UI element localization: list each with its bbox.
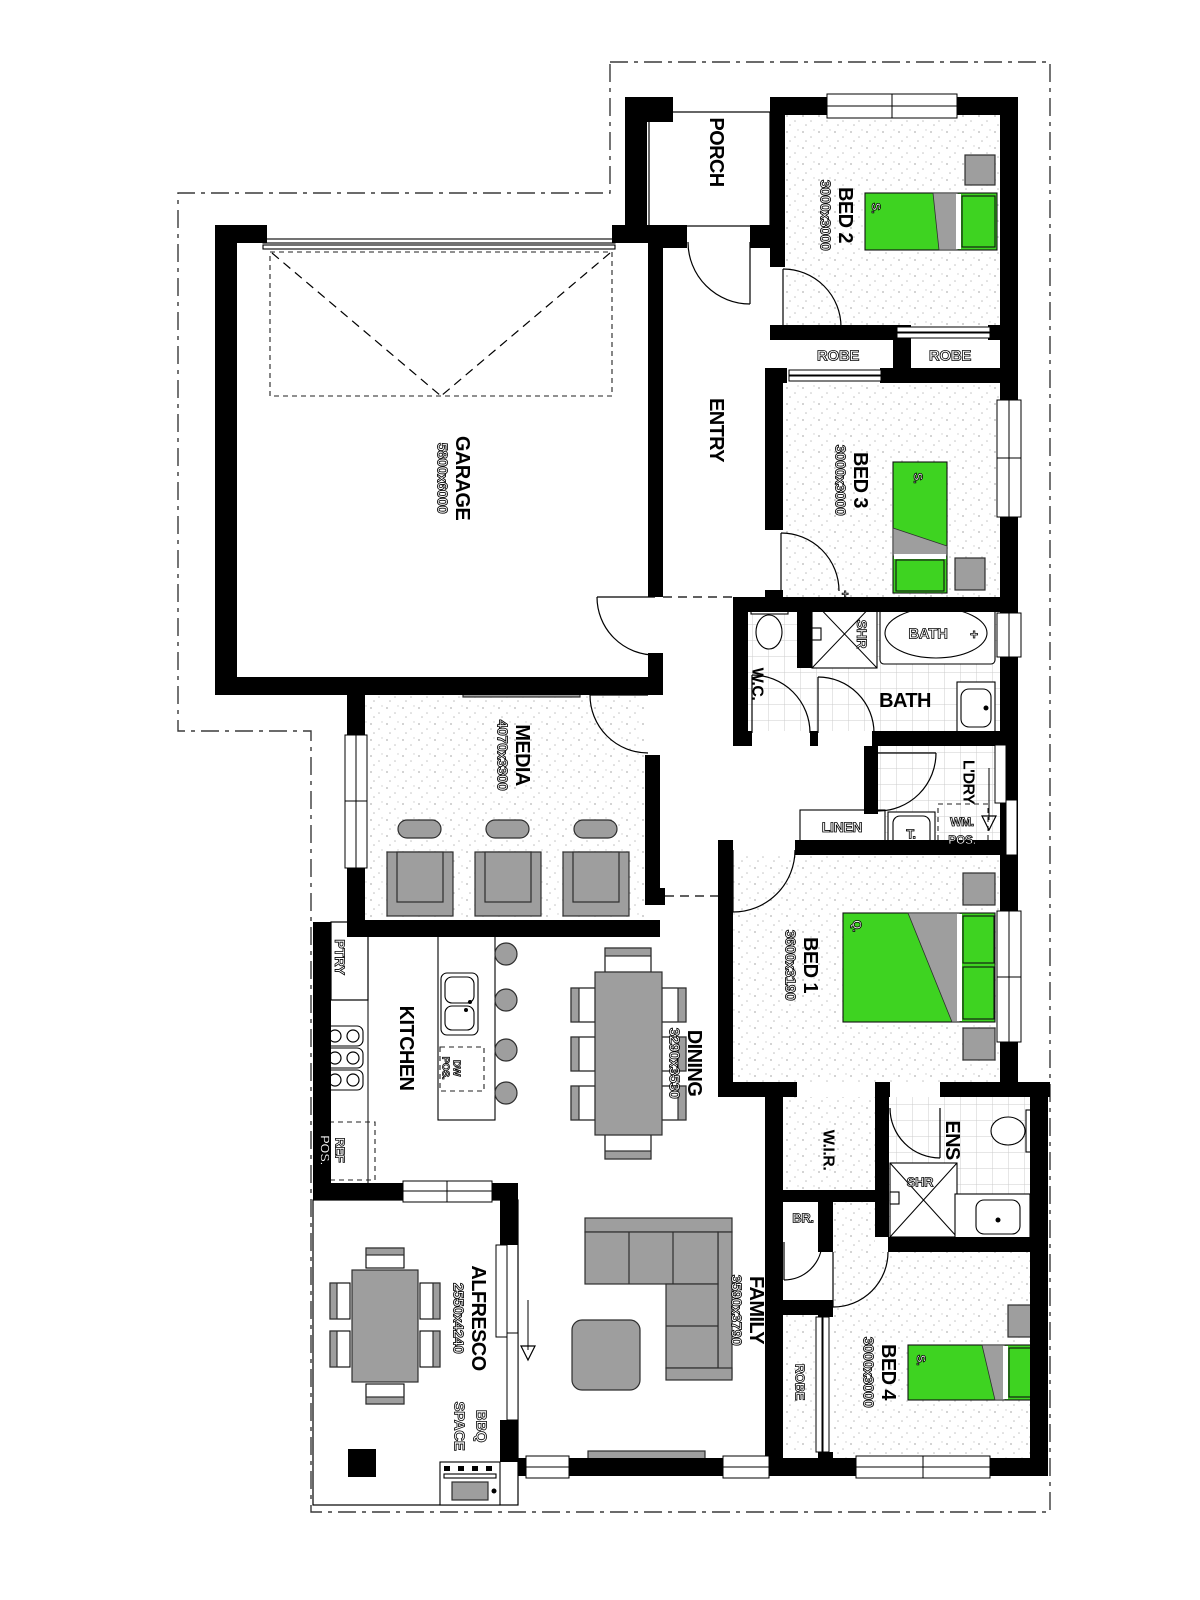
- bed2-bed-size-label: S.: [869, 203, 883, 214]
- svg-text:REF: REF: [333, 1137, 348, 1162]
- svg-text:3000x3000: 3000x3000: [832, 445, 849, 516]
- bath-window: [997, 613, 1021, 657]
- svg-text:FAMILY: FAMILY: [745, 1276, 767, 1345]
- svg-text:Q.: Q.: [850, 920, 864, 932]
- bed4-label: BED 4 3000x3000: [860, 1337, 900, 1408]
- bar-stools: [495, 943, 517, 1104]
- entry-label: ENTRY: [705, 398, 727, 463]
- wir-label: W.I.R.: [820, 1130, 837, 1171]
- garage-label: GARAGE 5800x6000: [434, 436, 474, 520]
- svg-text:2550x4240: 2550x4240: [450, 1283, 467, 1354]
- pantry-label: PTRY: [332, 939, 348, 976]
- svg-text:S.: S.: [914, 1355, 928, 1366]
- wm-label-1: WM.: [950, 815, 974, 829]
- family-window-2: [723, 1456, 769, 1478]
- trough-label: T.: [906, 827, 916, 842]
- kitchen-fittings: [320, 922, 517, 1183]
- bath-tub-label: BATH: [908, 626, 947, 643]
- svg-text:SHR: SHR: [854, 620, 870, 649]
- garage-internal-door: [597, 597, 655, 655]
- svg-text:3000x3000: 3000x3000: [860, 1337, 877, 1408]
- robe-bed3-label: ROBE: [929, 348, 971, 365]
- ens-vanity: [955, 1194, 1030, 1238]
- svg-text:DW: DW: [451, 1060, 462, 1077]
- bed2-label: BED 2 3000x3000: [817, 180, 857, 251]
- ottoman: [572, 1320, 640, 1390]
- kitchen-window: [403, 1181, 492, 1202]
- bath-shower-label: SHR: [854, 620, 870, 649]
- alfresco-table: [330, 1248, 440, 1404]
- bed3-bed-size-label: S.: [911, 473, 925, 484]
- bed4-nook-floor: [833, 1202, 875, 1252]
- kitchen-sink: [441, 973, 478, 1035]
- bed4-window: [856, 1456, 990, 1478]
- svg-text:S.: S.: [869, 203, 883, 214]
- robe2-slider: [897, 327, 990, 338]
- porch-label: PORCH: [705, 117, 727, 186]
- media-recliners: [387, 820, 629, 916]
- kitchen-label: KITCHEN: [395, 1006, 417, 1091]
- robe3-slider: [789, 370, 881, 381]
- robe-bed2-label: ROBE: [817, 348, 859, 365]
- svg-text:BED 1: BED 1: [799, 937, 821, 993]
- robe4-slider: [816, 1317, 829, 1452]
- alfresco-door-arrow: [521, 1300, 535, 1360]
- svg-text:W.I.R.: W.I.R.: [820, 1130, 837, 1171]
- svg-text:ENS: ENS: [941, 1120, 963, 1160]
- svg-text:S.: S.: [911, 473, 925, 484]
- robe-bed4-label: ROBE: [793, 1364, 808, 1401]
- floor-plan-page: +: [0, 0, 1200, 1600]
- svg-text:MEDIA: MEDIA: [511, 724, 533, 786]
- linen-label: LINEN: [822, 819, 863, 835]
- svg-text:PTRY: PTRY: [332, 939, 348, 976]
- bed1-window: [997, 911, 1021, 1042]
- bbq-space-label: BBQ SPACE: [451, 1401, 490, 1450]
- bbq: [440, 1462, 500, 1505]
- svg-text:3590x3790: 3590x3790: [728, 1275, 745, 1346]
- svg-text:SPACE: SPACE: [451, 1401, 468, 1450]
- wc-label: W.C.: [749, 668, 766, 701]
- svg-text:BED 2: BED 2: [834, 187, 856, 243]
- bed2-side-table: [965, 155, 995, 185]
- bed3-label: BED 3 3000x3000: [832, 445, 872, 516]
- svg-text:POS.: POS.: [318, 1135, 333, 1165]
- media-window: [345, 735, 367, 868]
- dining-label: DINING 3290x3530: [666, 1028, 706, 1099]
- floor-plan-canvas: +: [0, 0, 1200, 1600]
- svg-text:ALFRESCO: ALFRESCO: [467, 1265, 489, 1370]
- alfresco-label: ALFRESCO 2550x4240: [450, 1265, 490, 1370]
- svg-text:KITCHEN: KITCHEN: [395, 1006, 417, 1091]
- svg-text:ENTRY: ENTRY: [705, 398, 727, 463]
- svg-text:4070x3300: 4070x3300: [494, 720, 511, 791]
- media-label: MEDIA 4070x3300: [494, 720, 534, 791]
- svg-text:3600x3190: 3600x3190: [782, 930, 799, 1001]
- svg-text:PORCH: PORCH: [705, 117, 727, 186]
- family-window-1: [526, 1456, 569, 1478]
- fridge-label: REF POS.: [318, 1135, 348, 1165]
- svg-text:DINING: DINING: [683, 1030, 705, 1096]
- ens-shower-label: SHR: [907, 1175, 934, 1190]
- laundry-label: L'DRY: [960, 760, 977, 805]
- svg-text:GARAGE: GARAGE: [451, 436, 473, 520]
- broom-door: [784, 1242, 822, 1280]
- wm-label-2: POS.: [948, 833, 975, 847]
- bed3-window: [997, 400, 1021, 517]
- svg-text:ROBE: ROBE: [793, 1364, 808, 1401]
- svg-text:BBQ: BBQ: [473, 1410, 490, 1443]
- alfresco-slider: [496, 1245, 518, 1420]
- bed3-side-table: [955, 558, 985, 590]
- bed2-window: [827, 94, 957, 118]
- svg-text:3000x3000: 3000x3000: [817, 180, 834, 251]
- alfresco-post: [348, 1449, 376, 1477]
- bath-tap-label: +: [970, 626, 978, 642]
- svg-text:W.C.: W.C.: [749, 668, 766, 701]
- family-tv: [588, 1451, 705, 1459]
- broom-label: BR.: [792, 1211, 814, 1226]
- bed1-side-table-1: [963, 873, 995, 905]
- bed4-bed-size-label: S.: [914, 1355, 928, 1366]
- svg-text:BED 3: BED 3: [849, 452, 871, 508]
- bed1-side-table-2: [963, 1028, 995, 1060]
- svg-text:3290x3530: 3290x3530: [666, 1028, 683, 1099]
- bed1-bed-size-label: Q.: [850, 920, 864, 932]
- bed1-label: BED 1 3600x3190: [782, 930, 822, 1001]
- svg-text:POS.: POS.: [440, 1057, 451, 1080]
- bath-label: BATH: [879, 690, 931, 712]
- front-door: [688, 242, 750, 304]
- ens-label: ENS: [941, 1120, 963, 1160]
- bath-vanity: [957, 682, 995, 732]
- svg-text:5800x6000: 5800x6000: [434, 443, 451, 514]
- svg-text:L'DRY: L'DRY: [960, 760, 977, 805]
- garage-door: [263, 239, 615, 396]
- svg-text:BED 4: BED 4: [877, 1344, 899, 1401]
- family-label: FAMILY 3590x3790: [728, 1275, 768, 1346]
